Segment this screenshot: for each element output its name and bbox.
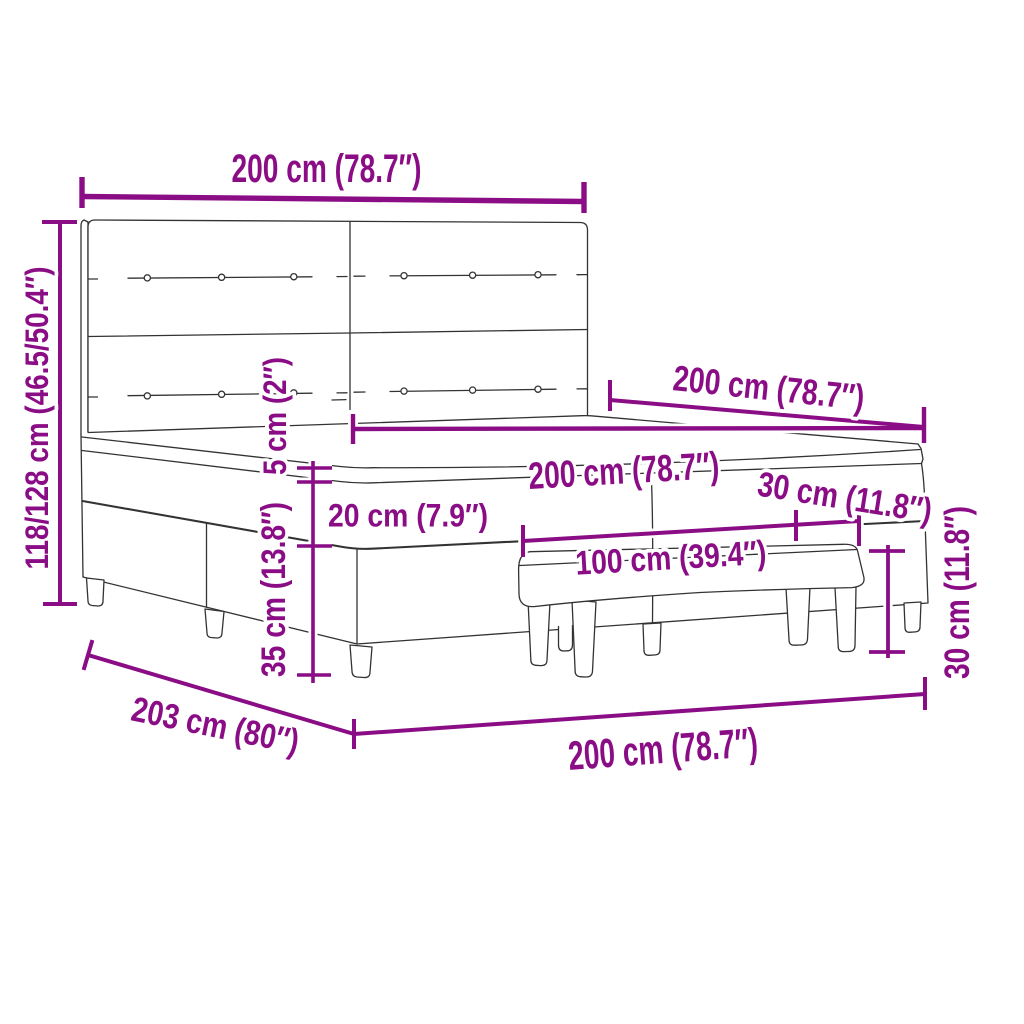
svg-text:118/128 cm (46.5/50.4″): 118/128 cm (46.5/50.4″): [19, 267, 55, 570]
svg-text:30 cm (11.8″): 30 cm (11.8″): [938, 506, 977, 679]
svg-text:35 cm (13.8″): 35 cm (13.8″): [255, 502, 293, 677]
svg-text:200 cm (78.7″): 200 cm (78.7″): [232, 147, 422, 191]
svg-text:5 cm (2″): 5 cm (2″): [257, 357, 293, 475]
svg-text:20 cm (7.9″): 20 cm (7.9″): [328, 498, 488, 534]
